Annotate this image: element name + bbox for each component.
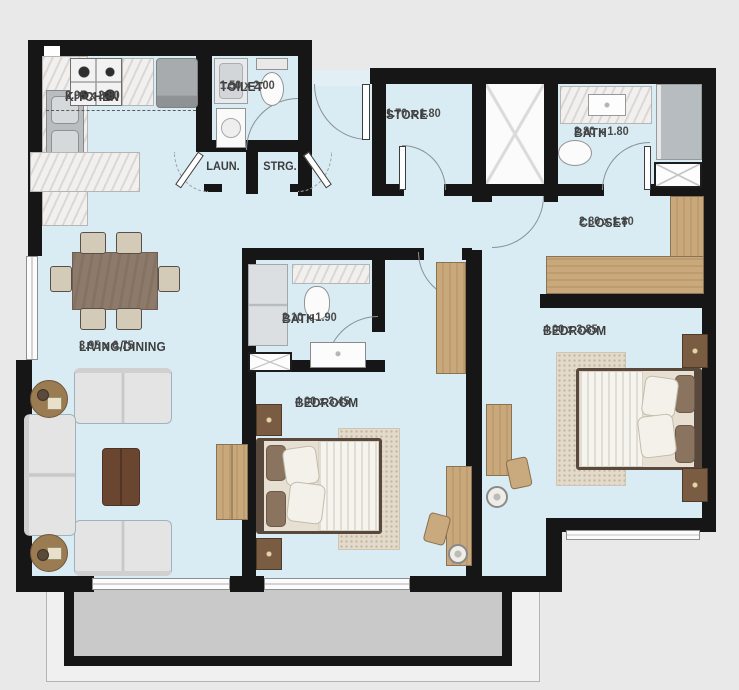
bath2-washbasin [310,342,366,368]
room-dims: 4.00 x 3.45 [295,396,350,409]
entry-door-leaf [362,84,370,140]
window-bedroom2 [566,530,700,540]
basin-oval [221,118,241,138]
bath2-shower-tray [248,352,292,372]
room-dims: 1.70 x 1.80 [386,108,441,121]
loveseat [74,520,172,576]
side-table-cup [37,549,49,561]
storage-label: STRG. [259,161,301,173]
kitchen-counter-dashline [46,110,196,111]
round-side-table [30,534,68,572]
wall-store-bottom-r [444,184,472,196]
nightstand [682,334,708,368]
bedroom1-wardrobe [436,262,466,374]
wall-bottom-mid [410,576,556,592]
wall-top-right [370,68,716,84]
floor-bedroom-notch [472,520,552,576]
bed-cushion [675,375,695,413]
fridge [156,58,198,108]
wall-shaft-left [472,84,486,196]
bath2-shower [248,264,288,346]
bed-pillow [286,481,327,525]
wall-left-upper [28,40,42,256]
side-table-book [47,547,62,560]
wall-shaft-right [544,84,558,196]
coffee-table [102,448,140,506]
bedroom1-bed [256,438,382,534]
bed-duvet [318,441,379,531]
wall-closet-door-stub [544,190,558,202]
toilet-washbasin [216,108,246,148]
room-dims: 4.00 x 3.85 [543,324,598,337]
bed-duvet [579,371,643,467]
room-dims: 1.50 x 2.00 [220,80,275,93]
room-dims: 2.10 x 1.90 [282,312,337,325]
laundry-label: LAUN. [201,161,245,173]
balcony [64,588,512,666]
round-side-table [30,380,68,418]
toilet-wc-tank [256,58,288,70]
bedroom2-stool [486,486,508,508]
room-dims: 2.80 x 1.80 [574,126,629,139]
bath1-basin [588,94,626,116]
dining-chair [116,232,142,254]
dining-table [72,252,158,310]
dining-chair [80,232,106,254]
wall-store-left [372,84,386,196]
side-table-cup [37,389,49,401]
store-door-leaf [399,146,406,190]
wall-bottom-pier [230,576,264,592]
wall-kitchen-toilet [196,40,212,152]
wall-bottom-left-corner [16,576,94,592]
room-dims: 3.95 x 6.75 [79,340,134,353]
wall-closets-mid [246,150,258,194]
dining-chair [158,266,180,292]
wall-hall-closet [472,190,492,202]
bed-pillow [637,413,678,459]
wall-top-left [28,40,312,56]
side-table-book [47,397,62,410]
wall-closet-bottom [540,294,716,308]
window-left [26,256,38,360]
kitchen-counter-mid [122,58,154,106]
bath1-door-leaf [644,146,651,190]
bed-pillow [282,445,321,487]
bed-pillow [640,375,679,419]
closet-wardrobe-vertical [670,196,704,258]
dining-chair [116,308,142,330]
bed-cushion [675,425,695,463]
duct-shaft [486,84,544,184]
wall-bath2-top [242,248,424,260]
bed-cushion [266,491,286,527]
bedroom2-bed [576,368,702,470]
kitchen-counter-bottom [30,152,140,192]
loveseat [74,368,172,424]
bedroom1-stool [448,544,468,564]
tv-console [216,444,248,520]
bath1-shower [656,84,702,160]
room-dims: 2.80 x 1.80 [579,216,634,229]
nightstand [256,404,282,436]
bath2-vanity [292,264,370,284]
bath1-shower-tray [654,162,702,188]
window-living-balcony [92,578,230,590]
bath1-wc-bowl [558,140,592,166]
sofa [24,414,76,536]
dining-chair [50,266,72,292]
closet-wardrobe-horizontal [546,256,704,294]
wall-bath1-bottom-l [558,184,604,196]
nightstand [256,538,282,570]
floor-plan: KITCHEN 2.95 x 2.80 TOILET 1.50 x 2.00 L… [0,0,739,690]
dining-chair [80,308,106,330]
window-bedroom1-balcony [264,578,410,590]
nightstand [682,468,708,502]
room-dims: 2.95 x 2.80 [65,90,120,103]
